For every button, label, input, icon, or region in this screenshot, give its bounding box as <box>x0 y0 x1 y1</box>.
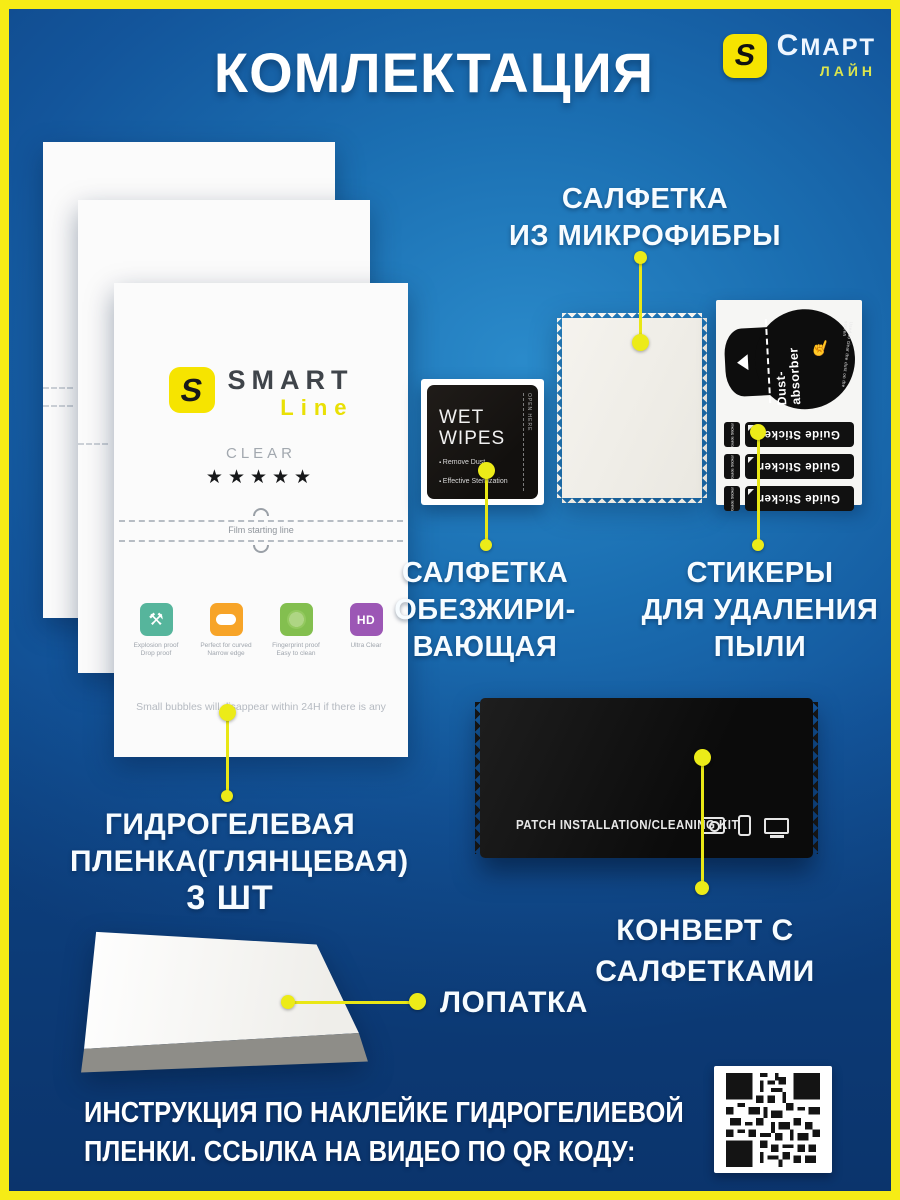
label-microfiber: САЛФЕТКАИЗ МИКРОФИБРЫ <box>480 181 810 255</box>
film-sheet-front: S SMART Line CLEAR ★★★★★ Film starting l… <box>114 283 408 757</box>
callout-dot <box>409 993 426 1010</box>
guide-sticker-row: Guide Sticker Guide Sticker <box>724 486 854 511</box>
brand-name: Смарт <box>777 34 876 60</box>
label-spatula: ЛОПАТКА <box>440 986 588 1020</box>
feature-fingerprint-proof: Fingerprint proofEasy to clean <box>263 603 329 658</box>
film-star-rating: ★★★★★ <box>114 466 408 489</box>
callout-dot <box>480 539 492 551</box>
callout-dot <box>281 995 295 1009</box>
callout-dot <box>221 790 233 802</box>
callout-dot <box>750 424 766 440</box>
callout-dot <box>219 704 236 721</box>
fingerprint-proof-icon <box>280 603 313 636</box>
open-here-strip: OPEN HERE <box>523 393 532 491</box>
arc-down-icon <box>253 545 269 553</box>
label-dust-stickers: СТИКЕРЫДЛЯ УДАЛЕНИЯПЫЛИ <box>625 555 895 666</box>
callout-dot <box>695 881 709 895</box>
curved-edge-icon <box>210 603 243 636</box>
guide-sticker-row: Guide Sticker Guide Sticker <box>724 454 854 479</box>
product-poster: КОМЛЕКТАЦИЯ S Смарт лайн S SMART Line CL… <box>0 0 900 1200</box>
callout-dot <box>634 251 647 264</box>
film-starting-dash-line <box>119 540 403 542</box>
qr-code <box>714 1066 832 1173</box>
film-logo-icon: S <box>169 367 215 413</box>
monitor-icon <box>764 818 789 834</box>
callout-dot <box>694 749 711 766</box>
label-film-quantity: 3 ШТ <box>70 879 390 918</box>
callout-line-wipes <box>485 470 488 546</box>
label-envelope: КОНВЕРТ ССАЛФЕТКАМИ <box>565 910 845 992</box>
film-brand: SMART <box>228 367 354 394</box>
dust-absorber-label: Dust-absorber <box>771 314 804 405</box>
callout-dot <box>632 334 649 351</box>
explosion-proof-icon: ⚒ <box>140 603 173 636</box>
dust-sticker-sheet: Dust-absorber ☝ Used to clear the dust o… <box>716 300 862 505</box>
callout-dot <box>752 539 764 551</box>
feature-curved-edge: Perfect for curvedNarrow edge <box>193 603 259 658</box>
film-bubbles-note: Small bubbles will disappear within 24H … <box>114 701 408 713</box>
callout-line-envelope <box>701 757 704 887</box>
phone-icon <box>738 815 751 836</box>
film-starting-line-note: Film starting line <box>114 525 408 535</box>
cleaning-kit-envelope: PATCH INSTALLATION/CLEANING KIT <box>480 698 813 858</box>
callout-line-stickers <box>757 432 760 545</box>
film-starting-dash-line <box>119 520 403 522</box>
arc-up-icon <box>253 508 269 516</box>
smartline-logo-icon: S <box>723 34 767 78</box>
label-degreasing-wipe: САЛФЕТКАОБЕЗЖИРИ-ВАЮЩАЯ <box>360 555 610 666</box>
callout-line-microfiber <box>639 258 642 343</box>
film-brand-line: Line <box>228 395 354 421</box>
camera-icon <box>701 817 725 834</box>
footer-instruction: ИНСТРУКЦИЯ ПО НАКЛЕЙКЕ ГИДРОГЕЛИЕВОЙПЛЕН… <box>84 1094 700 1172</box>
wet-wipes-pack: WETWIPES Remove Dust Effective Steriliza… <box>421 379 544 505</box>
film-finish-label: CLEAR <box>114 445 408 462</box>
dust-absorber-sticker: Dust-absorber ☝ Used to clear the dust o… <box>722 307 857 414</box>
guide-sticker-row: Guide Sticker Guide Sticker <box>724 422 854 447</box>
callout-line-film <box>226 712 229 797</box>
brand-logo: S Смарт лайн <box>723 34 876 79</box>
callout-line-spatula <box>288 1001 418 1004</box>
feature-explosion-proof: ⚒ Explosion proofDrop proof <box>123 603 189 658</box>
brand-subname: лайн <box>777 63 876 79</box>
label-hydrogel-film: ГИДРОГЕЛЕВАЯПЛЕНКА(ГЛЯНЦЕВАЯ) <box>70 806 390 880</box>
triangle-icon <box>737 354 749 371</box>
callout-dot <box>478 462 495 479</box>
wet-wipes-title: WETWIPES <box>439 407 505 449</box>
wet-wipes-bullet: Effective Sterilization <box>439 478 508 485</box>
wet-wipes-bullet: Remove Dust <box>439 459 485 466</box>
